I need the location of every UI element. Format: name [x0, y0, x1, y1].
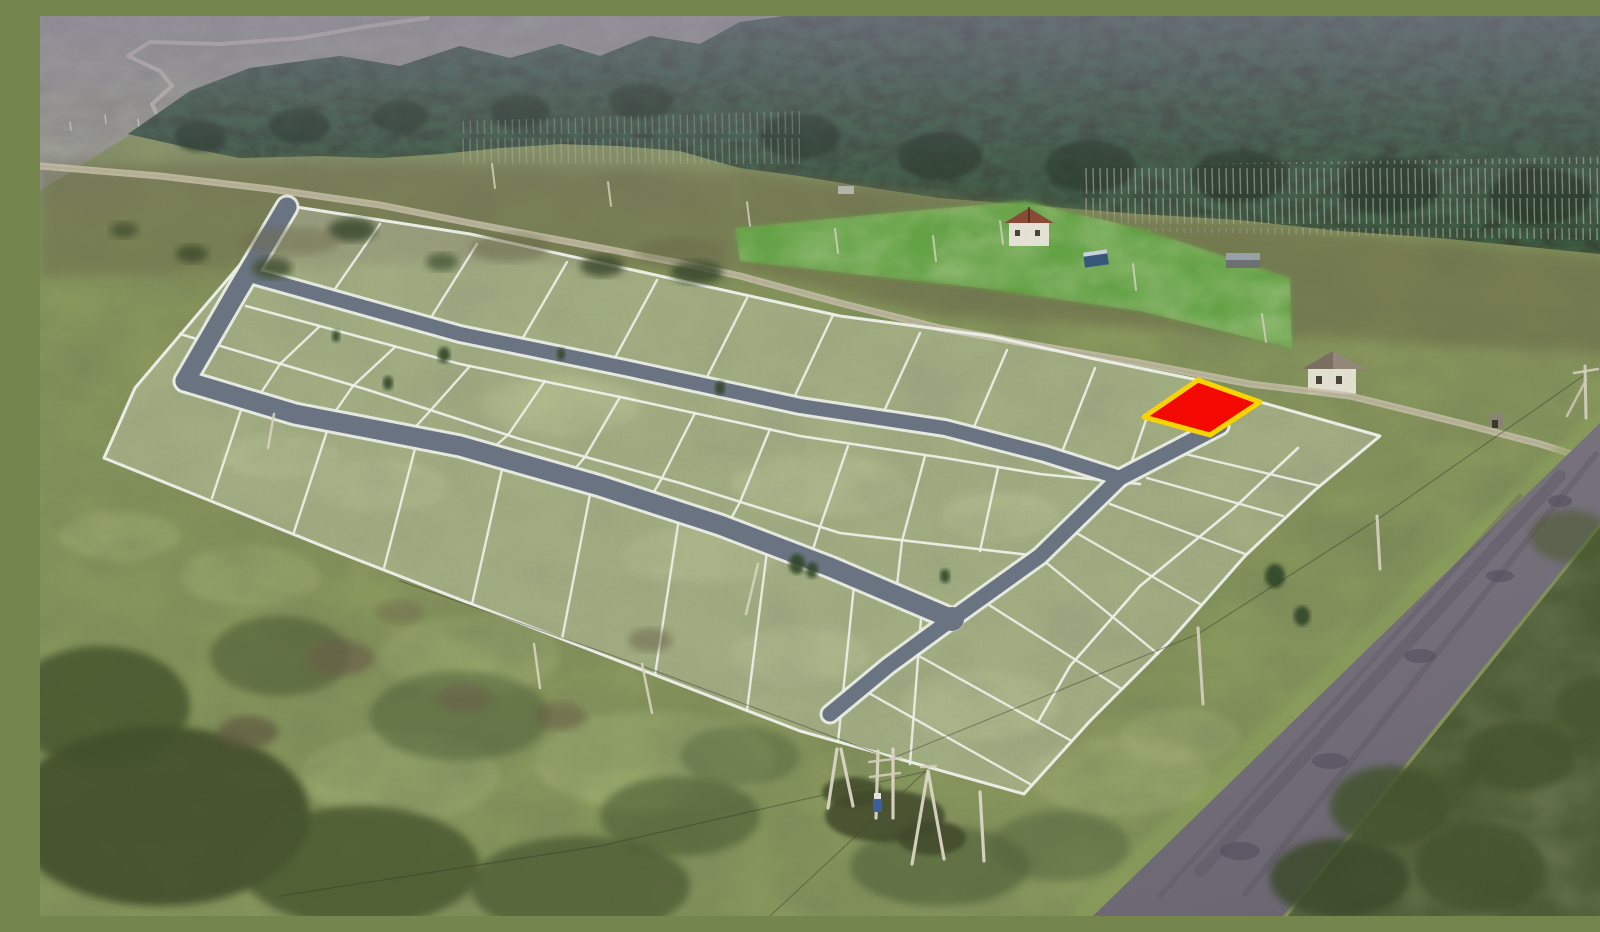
finishing [40, 16, 1600, 916]
aerial-scene-canvas [40, 16, 1600, 916]
aerial-photo-land-plots [40, 16, 1600, 916]
photo-grain [40, 16, 1600, 916]
